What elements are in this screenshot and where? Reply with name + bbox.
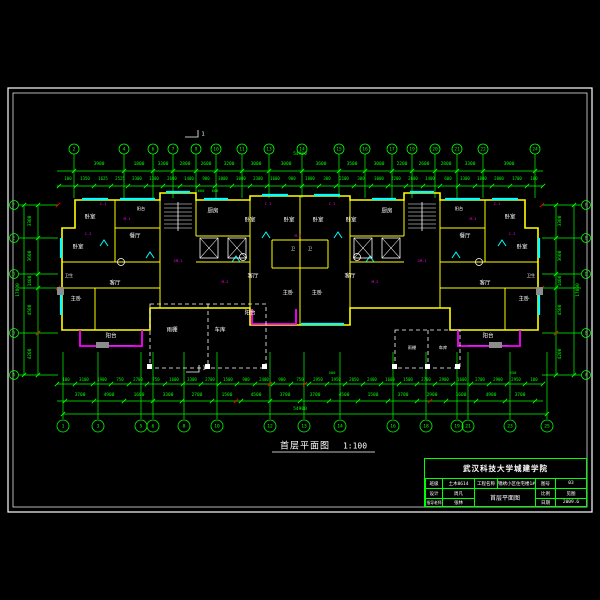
axis-bubble-label: 23 xyxy=(507,424,513,430)
room-label: 主卧 xyxy=(70,297,81,303)
dim-text: 2300 xyxy=(253,177,263,181)
dim-text: 3600 xyxy=(29,251,34,262)
dim-text: 3700 xyxy=(75,394,86,399)
room-label: 阳台 xyxy=(244,311,255,317)
door-marks xyxy=(100,232,506,262)
dim-text: 4900 xyxy=(486,394,497,399)
axis-bubble-label: 6 xyxy=(152,424,155,430)
dim-text: 3500 xyxy=(347,163,358,168)
dim-text: 1400 xyxy=(425,177,435,181)
axis-bubble-label: 2 xyxy=(73,147,76,153)
axis-bubble-label: 14 xyxy=(337,424,343,430)
dim-text: 3200 xyxy=(224,163,235,168)
axis-bubble-label: 3 xyxy=(97,424,100,430)
dim-text: 2400 xyxy=(259,378,269,382)
dim-text: 3600 xyxy=(316,163,327,168)
dim-text: 4200 xyxy=(29,349,34,360)
dim-text: 1500 xyxy=(223,378,233,382)
room-label: 厨房 xyxy=(207,209,218,215)
dim-text: 2525 xyxy=(115,177,125,181)
door-tag: JM-1 xyxy=(417,259,426,263)
axis-bubble-label: 9 xyxy=(195,147,198,153)
dim-text: 300 xyxy=(357,177,364,181)
dim-text: 1600 xyxy=(457,378,467,382)
dim-text: 2700 xyxy=(421,378,431,382)
room-label: 厨房 xyxy=(381,209,392,215)
dim-text: 2200 xyxy=(391,177,401,181)
dim-text: 3000 xyxy=(218,177,228,181)
dim-text: 3000 xyxy=(236,177,246,181)
dim-text: 3300 xyxy=(465,163,476,168)
room-label: 卫生 xyxy=(527,274,535,278)
room-label: 客厅 xyxy=(247,274,258,280)
dim-text: 2600 xyxy=(419,163,430,168)
dim-text: 3000 xyxy=(374,163,385,168)
dim-text: 100 xyxy=(62,378,69,382)
tb-label-scale: 比例 xyxy=(535,488,555,498)
dim-text: 1400 xyxy=(559,276,564,287)
room-label: 客厅 xyxy=(479,281,490,287)
tb-label-advisor: 指导老师 xyxy=(425,498,442,506)
axis-bubble-label: 22 xyxy=(480,147,486,153)
dim-text: 2700 xyxy=(192,394,203,399)
dim-text: 3900 xyxy=(504,163,515,168)
room-label: 卧室 xyxy=(345,218,356,224)
dim-text: 2700 xyxy=(475,378,485,382)
axis-bubble-label: 20 xyxy=(432,147,438,153)
dim-text: 3900 xyxy=(94,163,105,168)
room-label: 卫 xyxy=(308,247,312,251)
tb-value-design: 周凡 xyxy=(442,488,474,498)
room-label: 卫生 xyxy=(65,274,73,278)
door-tag: M-1 xyxy=(124,217,131,221)
dim-text: 300 xyxy=(323,177,330,181)
dim-text: 1600 xyxy=(456,394,467,399)
dim-text: 1600 xyxy=(134,394,145,399)
dim-text: 1500 xyxy=(403,378,413,382)
dim-text: 2900 xyxy=(493,378,503,382)
axis-bubble-label: 13 xyxy=(266,147,272,153)
axis-bubble-label: F xyxy=(13,203,16,208)
dim-text: 900 xyxy=(202,177,209,181)
drawing-canvas: 2467910111314151617192021222413568101213… xyxy=(0,0,600,600)
title-block-school: 武汉科技大学城建学院 xyxy=(425,459,586,478)
dim-text: 4900 xyxy=(104,394,115,399)
room-label: 客厅 xyxy=(344,274,355,280)
room-label: 卧室 xyxy=(312,218,323,224)
room-label: 主卧 xyxy=(518,297,529,303)
axis-bubble-label: 12 xyxy=(267,424,273,430)
window-tag: C-1 xyxy=(100,202,107,206)
tb-label-project: 工程名称 xyxy=(474,478,497,488)
dim-text: 900 xyxy=(242,378,249,382)
garage-canopy xyxy=(147,304,460,369)
dim-text: 3000 xyxy=(251,163,262,168)
dim-text: 3300 xyxy=(559,216,564,227)
dim-text: 1600 xyxy=(270,177,280,181)
dim-text: 650 xyxy=(510,371,517,375)
window-tag: C-1 xyxy=(265,202,272,206)
dim-text: 2700 xyxy=(205,378,215,382)
axis-bubble-label: A xyxy=(13,373,16,378)
tb-value-advisor: 张林 xyxy=(442,498,474,506)
dim-text: 2950 xyxy=(313,378,323,382)
axis-bubble-label: 19 xyxy=(409,147,415,153)
dim-text: 4500 xyxy=(29,305,34,316)
axis-bubble-label: 25 xyxy=(544,424,550,430)
dim-text: 100 xyxy=(64,177,71,181)
dim-text: 1800 xyxy=(477,177,487,181)
title-block: 武汉科技大学城建学院 班级 土木0614 工程名称 锦绣小区住宅楼1# 图号 0… xyxy=(424,458,587,507)
dim-text: 1700 xyxy=(512,177,522,181)
dim-text: 3300 xyxy=(132,177,142,181)
window-tag: C-1 xyxy=(329,202,336,206)
dim-text: 2700 xyxy=(133,378,143,382)
dim-text: 4500 xyxy=(251,394,262,399)
room-label: 车库 xyxy=(439,346,447,350)
dim-text: 100 xyxy=(530,177,537,181)
axis-bubble-label: 8 xyxy=(183,424,186,430)
dim-text: 2800 xyxy=(441,163,452,168)
room-label: 客厅 xyxy=(109,281,120,287)
dim-text: 3300 xyxy=(163,394,174,399)
dim-text: 2900 xyxy=(427,394,438,399)
door-tag: M-1 xyxy=(470,217,477,221)
axis-bubble-label: 21 xyxy=(454,147,460,153)
window-tag: C-2 xyxy=(85,232,92,236)
dim-text: 3000 xyxy=(374,177,384,181)
dim-text: 1350 xyxy=(80,177,90,181)
dim-text: 2950 xyxy=(511,378,521,382)
room-label: 阳台 xyxy=(455,207,463,211)
room-label: 主卧 xyxy=(311,291,322,297)
axis-bubble-label: 1 xyxy=(62,424,65,430)
drawing-title: 首层平面图 xyxy=(280,439,330,452)
dim-text: 3300 xyxy=(460,177,470,181)
dim-text: 2900 xyxy=(439,378,449,382)
window-tag: C-2 xyxy=(509,232,516,236)
dim-text: 3300 xyxy=(29,216,34,227)
dim-text: 1950 xyxy=(331,378,341,382)
dim-text: 4200 xyxy=(559,349,564,360)
room-label: 主卧 xyxy=(282,291,293,297)
dim-text: 3700 xyxy=(398,394,409,399)
total-dim: 54900 xyxy=(293,408,307,413)
dim-text: 600 xyxy=(198,189,205,193)
dim-text: 2800 xyxy=(494,177,504,181)
dim-text: 3300 xyxy=(158,163,169,168)
dim-text: 3700 xyxy=(280,394,291,399)
axis-bubble-label: 19 xyxy=(454,424,460,430)
axis-bubble-label: E xyxy=(13,236,16,241)
axis-bubble-label: D xyxy=(13,272,16,277)
room-label: 卧室 xyxy=(72,245,83,251)
dim-text: 2600 xyxy=(408,177,418,181)
dim-text: 2600 xyxy=(167,177,177,181)
dim-text: 1500 xyxy=(368,394,379,399)
dim-text: 900 xyxy=(278,378,285,382)
tb-value-project: 锦绣小区住宅楼1# xyxy=(497,478,535,488)
dim-text: 4500 xyxy=(339,394,350,399)
axis-bubble-label: 7 xyxy=(172,147,175,153)
dim-text: 3700 xyxy=(515,394,526,399)
room-label: 卧室 xyxy=(244,218,255,224)
total-dim: 17800 xyxy=(577,283,582,297)
dim-text: 600 xyxy=(444,177,451,181)
dim-text: 900 xyxy=(288,177,295,181)
dim-text: 3700 xyxy=(310,394,321,399)
dim-text: 1900 xyxy=(97,378,107,382)
interior-walls xyxy=(62,196,538,330)
door-tag: M-1 xyxy=(295,234,302,238)
room-label: 卧室 xyxy=(504,215,515,221)
dim-text: 1300 xyxy=(149,177,159,181)
room-label: 餐厅 xyxy=(459,234,470,240)
room-label: 卧室 xyxy=(84,215,95,221)
axis-bubble-label: 15 xyxy=(336,147,342,153)
room-label: 车库 xyxy=(214,328,225,334)
dim-text: 100 xyxy=(530,378,537,382)
axis-bubble-label: 13 xyxy=(301,424,307,430)
door-tag: JM-1 xyxy=(173,259,182,263)
dim-text: 750 xyxy=(116,378,123,382)
tb-value-sheetno: 03 xyxy=(555,478,586,488)
door-tag: M-2 xyxy=(222,280,229,284)
dim-text: 3300 xyxy=(187,378,197,382)
dim-text: 1800 xyxy=(134,163,145,168)
axis-bubble-label: 17 xyxy=(389,147,395,153)
dim-text: 1800 xyxy=(305,177,315,181)
room-label: 卧室 xyxy=(516,245,527,251)
room-label: 阳台 xyxy=(482,334,493,340)
room-label: 卧室 xyxy=(283,218,294,224)
tb-label-sheetno: 图号 xyxy=(535,478,555,488)
axis-bubble-label: 18 xyxy=(423,424,429,430)
axis-bubble-label: 24 xyxy=(532,147,538,153)
axis-bubble-label: 10 xyxy=(214,424,220,430)
dim-text: 2400 xyxy=(367,378,377,382)
dim-text: 750 xyxy=(152,378,159,382)
dim-text: 2600 xyxy=(201,163,212,168)
room-label: 雨棚 xyxy=(166,328,177,334)
dim-text: 2800 xyxy=(180,163,191,168)
dim-text: 500 xyxy=(329,371,336,375)
axis-bubble-label: 16 xyxy=(362,147,368,153)
dim-text: 1625 xyxy=(98,177,108,181)
room-label: 雨棚 xyxy=(408,346,416,350)
dim-text: 1400 xyxy=(184,177,194,181)
dim-text: 2050 xyxy=(349,378,359,382)
axis-bubble-label: 4 xyxy=(123,147,126,153)
axis-bubble-label: 10 xyxy=(213,147,219,153)
tb-value-class: 土木0614 xyxy=(442,478,474,488)
dim-text: 750 xyxy=(296,378,303,382)
dim-text: 3600 xyxy=(559,251,564,262)
section-mark-label: 1 xyxy=(201,132,204,138)
dim-text: 1600 xyxy=(169,378,179,382)
drawing-scale: 1:100 xyxy=(343,442,367,451)
dim-text: 2100 xyxy=(339,177,349,181)
total-dim: 17800 xyxy=(17,283,22,297)
tb-label-class: 班级 xyxy=(425,478,442,488)
tb-value-scale: 见图 xyxy=(555,488,586,498)
room-label: 餐厅 xyxy=(129,234,140,240)
dim-text: 4500 xyxy=(559,305,564,316)
dim-text: 2200 xyxy=(397,163,408,168)
window-tag: C-1 xyxy=(494,202,501,206)
axis-bubble-label: 5 xyxy=(140,424,143,430)
dim-text: 3100 xyxy=(79,378,89,382)
room-label: 卫 xyxy=(291,247,295,251)
cad-sheet: 2467910111314151617192021222413568101213… xyxy=(0,0,600,600)
total-dim: 54900 xyxy=(293,153,307,158)
tb-drawing-name: 首层平面图 xyxy=(474,488,535,506)
room-label: 阳台 xyxy=(137,207,145,211)
dim-text: 1500 xyxy=(222,394,233,399)
axis-bubble-label: B xyxy=(13,331,16,336)
axis-bubble-label: 6 xyxy=(152,147,155,153)
tb-label-design: 设计 xyxy=(425,488,442,498)
axis-bubble-label: 11 xyxy=(239,147,245,153)
axis-bubble-label: 21 xyxy=(465,424,471,430)
dim-text: 600 xyxy=(212,189,219,193)
dim-text: 3000 xyxy=(281,163,292,168)
dim-text: 1600 xyxy=(385,378,395,382)
room-label: 阳台 xyxy=(105,334,116,340)
door-tag: M-2 xyxy=(372,280,379,284)
axis-bubble-label: 16 xyxy=(390,424,396,430)
dim-text: 1400 xyxy=(29,276,34,287)
tb-label-date: 日期 xyxy=(535,498,555,506)
section-mark-label: 1 xyxy=(202,366,205,372)
tb-value-date: 2009.6 xyxy=(555,498,586,506)
